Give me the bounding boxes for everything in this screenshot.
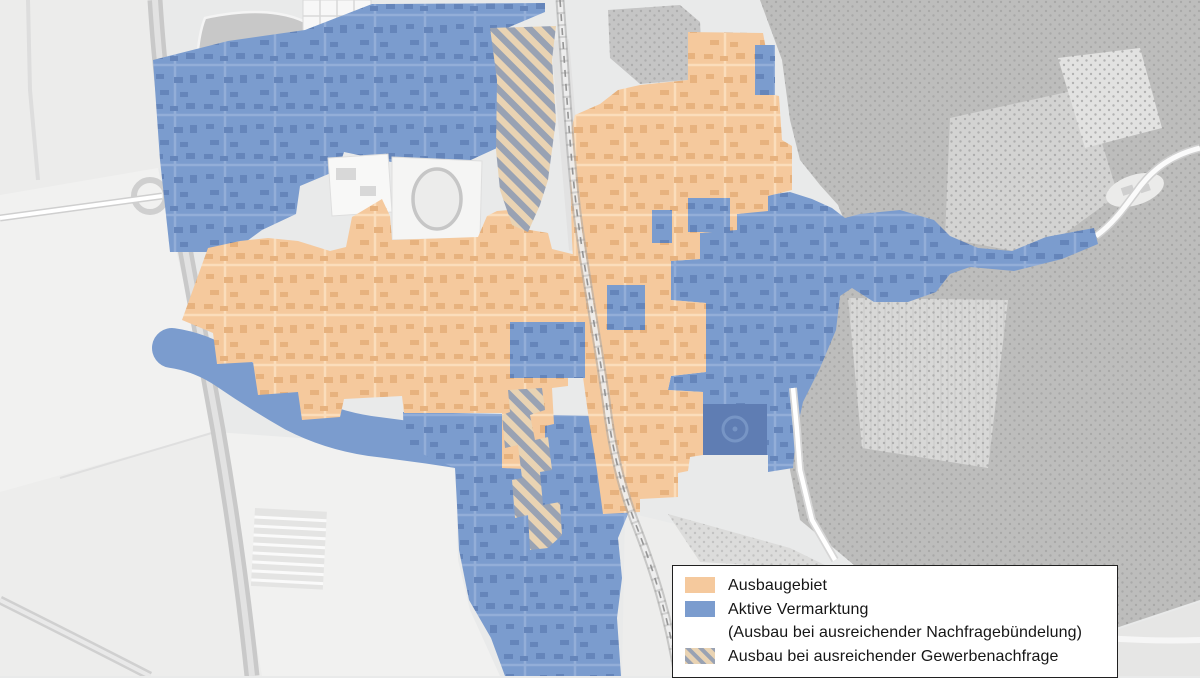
legend-label: Aktive Vermarktung (Ausbau bei ausreiche… [728,598,1082,644]
legend-item-active-marketing: Aktive Vermarktung (Ausbau bei ausreiche… [683,598,1107,644]
legend-item-commercial-hatch: Ausbau bei ausreichender Gewerbenachfrag… [683,645,1107,668]
legend-label: Ausbaugebiet [728,574,827,597]
legend-label-sub: (Ausbau bei ausreichender Nachfragebünde… [728,621,1082,644]
stadium-oval [413,169,461,229]
zone-active-marketing-block [607,285,645,330]
greenhouses [251,508,327,590]
expansion-swatch-icon [685,577,715,593]
hatch-swatch-icon [685,648,715,664]
map-page: Ausbaugebiet Aktive Vermarktung (Ausbau … [0,0,1200,676]
zone-active-marketing-block [688,198,730,232]
map-legend: Ausbaugebiet Aktive Vermarktung (Ausbau … [672,565,1118,678]
legend-label: Ausbau bei ausreichender Gewerbenachfrag… [728,645,1059,668]
zone-active-marketing-block [510,322,585,378]
zone-active-marketing-block [652,210,672,243]
zone-active-marketing-block [755,45,775,95]
park-square [703,404,767,455]
marketing-swatch-icon [685,601,715,617]
legend-label-main: Aktive Vermarktung [728,601,869,618]
legend-item-expansion: Ausbaugebiet [683,574,1107,597]
